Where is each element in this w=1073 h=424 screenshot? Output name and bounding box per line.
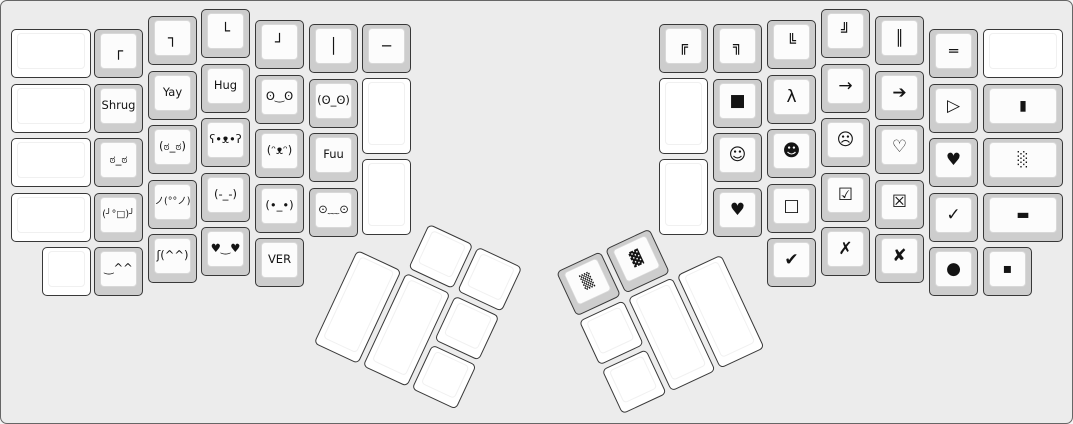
key-blank[interactable]: [11, 29, 91, 78]
keycap-top: ●: [935, 251, 972, 287]
key-legend: ●: [946, 261, 961, 278]
key-Yay[interactable]: Yay: [148, 71, 197, 120]
key-legend: ┐: [168, 31, 177, 46]
keycap-top: [368, 82, 405, 145]
key-▮[interactable]: ▮: [983, 84, 1063, 133]
key-legend: └: [221, 24, 230, 39]
keycap-top: ░: [989, 142, 1057, 178]
key-legend: ♥: [730, 202, 745, 219]
keycap-top: ʕ•ᴥ•ʔ: [207, 122, 244, 158]
keycap-top: ♥: [719, 192, 756, 228]
key-☻[interactable]: ☻: [767, 129, 816, 178]
key-legend: ╚: [787, 35, 796, 50]
keycap-top: ╔: [665, 28, 702, 64]
keycap-top: ▒: [563, 257, 612, 305]
keycap-top: ╚: [773, 24, 810, 60]
key-legend: ┌: [114, 44, 123, 59]
keycap-top: [665, 163, 702, 226]
keycap-top: ☹: [827, 122, 864, 158]
key-blank[interactable]: [659, 159, 708, 235]
key-Fuu[interactable]: Fuu: [309, 133, 358, 182]
keycap-top: ═: [935, 33, 972, 69]
key-╔[interactable]: ╔: [659, 24, 708, 73]
key-legend: λ: [786, 89, 796, 106]
keycap-top: ☒: [881, 184, 918, 220]
key-legend: (ʘ_ʘ): [317, 95, 350, 107]
key-♡[interactable]: ♡: [875, 125, 924, 174]
keycap-top: (ಠ_ಠ): [154, 129, 191, 165]
key-(•_•)[interactable]: (•_•): [255, 184, 304, 233]
key-legend: ✘: [892, 248, 906, 265]
keycap-top: ╝: [827, 13, 864, 49]
keycap-top: [466, 253, 515, 301]
key-legend: ■: [729, 93, 745, 110]
keyboard-canvas: ┌Shrugಠ_ಠ(╯°□)╯‿^^┐Yay(ಠ_ಠ)ノ(°°ノ)ʃ(^^)└H…: [0, 0, 1073, 424]
keycap-top: ⊙﹏⊙: [315, 192, 352, 228]
key-legend: ☑: [838, 187, 853, 204]
key-legend: ☺: [729, 147, 747, 164]
key-☑[interactable]: ☑: [821, 173, 870, 222]
key-║[interactable]: ║: [875, 16, 924, 65]
key-☒[interactable]: ☒: [875, 180, 924, 229]
keycap-top: ノ(°°ノ): [154, 184, 191, 220]
key-legend: ▮: [1019, 99, 1027, 113]
keycap-top: ☑: [827, 177, 864, 213]
keycap-top: Shrug: [100, 88, 137, 124]
key-─[interactable]: ─: [362, 24, 411, 73]
key-legend: ✗: [838, 241, 852, 258]
keycap-top: (╯°□)╯: [100, 197, 137, 233]
key-legend: ʃ(^^): [156, 250, 188, 262]
key-legend: ┘: [275, 35, 284, 50]
key-legend: ಠ_ಠ: [110, 154, 128, 166]
key-λ[interactable]: λ: [767, 75, 816, 124]
keycap-top: [417, 230, 466, 278]
key-ʘ‿ʘ[interactable]: ʘ‿ʘ: [255, 75, 304, 124]
key-Shrug[interactable]: Shrug: [94, 84, 143, 133]
key-♥‿♥[interactable]: ♥‿♥: [201, 227, 250, 276]
key-legend: ʘ‿ʘ: [266, 91, 293, 103]
keycap-top: VER: [261, 242, 298, 278]
key-legend: ♥: [946, 152, 961, 169]
key-■[interactable]: ■: [713, 79, 762, 128]
key-legend: ♡: [892, 139, 907, 156]
key-●[interactable]: ●: [929, 247, 978, 296]
keycap-top: ✗: [827, 231, 864, 267]
key-ಠ_ಠ[interactable]: ಠ_ಠ: [94, 138, 143, 187]
keycap-top: [444, 302, 493, 350]
keycap-top: ✓: [935, 197, 972, 233]
keycap-top: [665, 82, 702, 145]
key-legend: Yay: [163, 87, 182, 99]
key-✗[interactable]: ✗: [821, 227, 870, 276]
keycap-top: [368, 163, 405, 226]
key-blank[interactable]: [11, 138, 91, 187]
key-legend: Hug: [214, 80, 237, 92]
keycap-top: │: [315, 28, 352, 64]
keycap-top: [586, 306, 635, 354]
key-(ᵔᴥᵔ)[interactable]: (ᵔᴥᵔ): [255, 129, 304, 178]
key-legend: (-_-): [214, 189, 237, 201]
key-→[interactable]: →: [821, 64, 870, 113]
key-legend: ♥‿♥: [211, 243, 241, 255]
key-legend: ─: [382, 39, 391, 54]
key-▷[interactable]: ▷: [929, 84, 978, 133]
key-blank[interactable]: [362, 159, 411, 235]
key-┘[interactable]: ┘: [255, 20, 304, 69]
key-legend: ‿^^: [104, 263, 133, 275]
key-legend: ╝: [841, 24, 850, 39]
keycap-top: ▷: [935, 88, 972, 124]
keycap-top: [17, 197, 85, 233]
keycap-top: λ: [773, 79, 810, 115]
key-legend: ╗: [733, 39, 742, 54]
key-☺[interactable]: ☺: [713, 133, 762, 182]
key-VER[interactable]: VER: [255, 238, 304, 287]
key-☹[interactable]: ☹: [821, 118, 870, 167]
key-legend: ✔: [784, 252, 798, 269]
key-legend: ░: [1018, 153, 1029, 167]
key-blank[interactable]: [11, 193, 91, 242]
key-ʃ(^^)[interactable]: ʃ(^^): [148, 234, 197, 283]
keycap-top: └: [207, 13, 244, 49]
keycap-top: ☺: [719, 137, 756, 173]
keycap-top: ☻: [773, 133, 810, 169]
key-└[interactable]: └: [201, 9, 250, 58]
keycap-top: (ʘ_ʘ): [315, 83, 352, 119]
key-✔[interactable]: ✔: [767, 238, 816, 287]
keycap-top: ➔: [881, 75, 918, 111]
key-legend: ▪: [1003, 262, 1013, 276]
key-blank[interactable]: [42, 247, 91, 296]
keycap-top: (-_-): [207, 177, 244, 213]
key-legend: ☹: [837, 132, 855, 149]
key-legend: ═: [949, 44, 958, 59]
key-╗[interactable]: ╗: [713, 24, 762, 73]
key-legend: ➔: [892, 85, 906, 102]
keycap-top: ♥‿♥: [207, 231, 244, 267]
key-blank[interactable]: [362, 78, 411, 154]
keycap-top: ▬: [989, 197, 1057, 233]
keycap-top: ╗: [719, 28, 756, 64]
keycap-top: ▮: [989, 88, 1057, 124]
key-✓[interactable]: ✓: [929, 193, 978, 242]
keycap-top: [17, 33, 85, 69]
key-legend: ▷: [947, 98, 960, 115]
keycap-top: ♥: [935, 142, 972, 178]
key-legend: ▬: [1016, 208, 1029, 222]
key-legend: ║: [895, 31, 904, 46]
key-(ʘ_ʘ)[interactable]: (ʘ_ʘ): [309, 79, 358, 128]
keycap-top: [17, 142, 85, 178]
keycap-top: ┌: [100, 33, 137, 69]
keycap-top: ಠ_ಠ: [100, 142, 137, 178]
key-Hug[interactable]: Hug: [201, 64, 250, 113]
keycap-top: ✔: [773, 242, 810, 278]
key-blank[interactable]: [659, 78, 708, 154]
key-ノ(°°ノ)[interactable]: ノ(°°ノ): [148, 180, 197, 229]
key-legend: (•_•): [265, 200, 293, 212]
key-legend: ʕ•ᴥ•ʔ: [209, 134, 241, 146]
keycap-top: ║: [881, 20, 918, 56]
keycap-top: [989, 33, 1057, 69]
keycap-top: ʃ(^^): [154, 238, 191, 274]
key-╝[interactable]: ╝: [821, 9, 870, 58]
keycap-top: ✘: [881, 238, 918, 274]
key-legend: ☻: [783, 143, 801, 160]
key-⊙﹏⊙[interactable]: ⊙﹏⊙: [309, 188, 358, 237]
keycap-top: ▪: [989, 251, 1026, 287]
keycap-top: [609, 355, 658, 403]
key-legend: ☒: [892, 194, 907, 211]
keycap-top: ‿^^: [100, 251, 137, 287]
key-blank[interactable]: [983, 29, 1063, 78]
key-legend: (ᵔᴥᵔ): [267, 145, 292, 157]
key-legend: ╔: [679, 39, 688, 54]
key-legend: (ಠ_ಠ): [159, 141, 186, 153]
key-(ಠ_ಠ)[interactable]: (ಠ_ಠ): [148, 125, 197, 174]
keycap-top: [48, 251, 85, 287]
key-legend: →: [838, 78, 852, 95]
key-░[interactable]: ░: [983, 138, 1063, 187]
key-legend: Shrug: [102, 100, 136, 112]
keycap-top: □: [773, 188, 810, 224]
key-═[interactable]: ═: [929, 29, 978, 78]
keycap-top: [421, 351, 470, 399]
key-(-_-)[interactable]: (-_-): [201, 173, 250, 222]
keycap-top: Yay: [154, 75, 191, 111]
keycap-top: (ᵔᴥᵔ): [261, 133, 298, 169]
key-♥[interactable]: ♥: [929, 138, 978, 187]
key-blank[interactable]: [11, 84, 91, 133]
keycap-top: ▓: [612, 235, 661, 283]
key-╚[interactable]: ╚: [767, 20, 816, 69]
key-│[interactable]: │: [309, 24, 358, 73]
keycap-top: ─: [368, 28, 405, 64]
key-ʕ•ᴥ•ʔ[interactable]: ʕ•ᴥ•ʔ: [201, 118, 250, 167]
keycap-top: ʘ‿ʘ: [261, 79, 298, 115]
key-legend: VER: [268, 254, 291, 266]
key-▬[interactable]: ▬: [983, 193, 1063, 242]
keycap-top: Fuu: [315, 137, 352, 173]
keycap-top: ┘: [261, 24, 298, 60]
key-✘[interactable]: ✘: [875, 234, 924, 283]
key-legend: Fuu: [323, 149, 344, 161]
keycap-top: Hug: [207, 68, 244, 104]
key-legend: (╯°□)╯: [102, 210, 135, 220]
key-legend: ✓: [946, 207, 960, 224]
key-legend: ▒: [580, 273, 596, 290]
key-legend: ▓: [629, 250, 645, 267]
keycap-top: ┐: [154, 20, 191, 56]
key-♥[interactable]: ♥: [713, 188, 762, 237]
key-➔[interactable]: ➔: [875, 71, 924, 120]
keycap-top: →: [827, 68, 864, 104]
key-┐[interactable]: ┐: [148, 16, 197, 65]
keycap-top: ♡: [881, 129, 918, 165]
key-legend: ノ(°°ノ): [155, 197, 191, 207]
key-legend: ⊙﹏⊙: [318, 204, 349, 216]
key-(╯°□)╯[interactable]: (╯°□)╯: [94, 193, 143, 242]
key-legend: □: [783, 198, 799, 215]
keycap-top: [17, 88, 85, 124]
keycap-top: (•_•): [261, 188, 298, 224]
keycap-top: ■: [719, 83, 756, 119]
key-□[interactable]: □: [767, 184, 816, 233]
key-┌[interactable]: ┌: [94, 29, 143, 78]
key-‿^^[interactable]: ‿^^: [94, 247, 143, 296]
key-legend: │: [329, 39, 338, 54]
key-▪[interactable]: ▪: [983, 247, 1032, 296]
